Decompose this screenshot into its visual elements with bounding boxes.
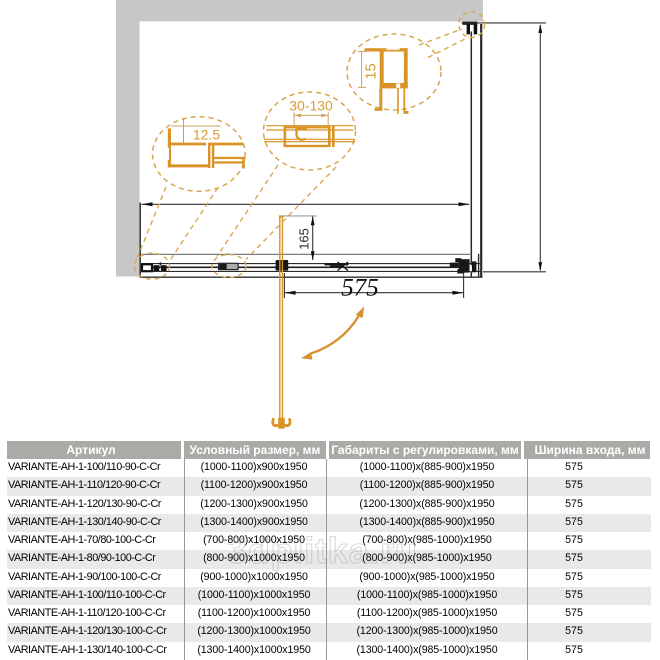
svg-text:12.5: 12.5	[193, 127, 220, 143]
svg-text:15: 15	[364, 63, 380, 79]
svg-text:575: 575	[341, 274, 379, 301]
svg-text:30-130: 30-130	[289, 98, 333, 114]
svg-text:165: 165	[297, 228, 312, 250]
